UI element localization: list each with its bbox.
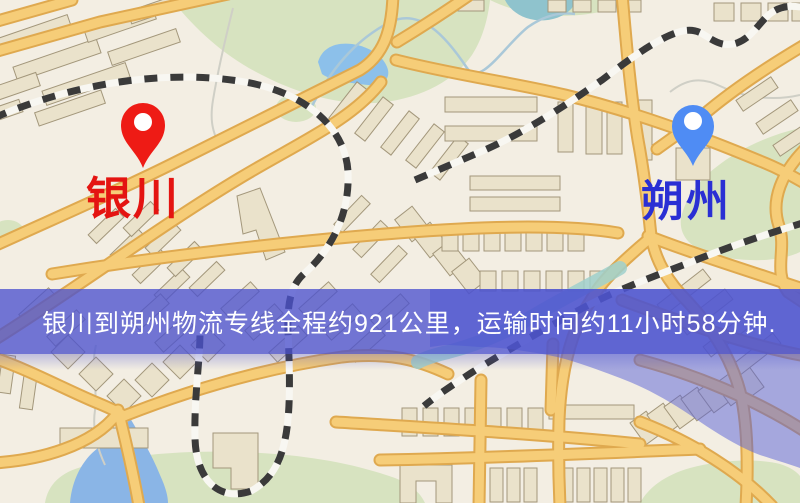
route-info-banner: 银川到朔州物流专线全程约921公里，运输时间约11小时58分钟. <box>0 289 800 354</box>
map-graphic: 银川 朔州 银川到朔州物流专线全程约921公里，运输时间约11小时58分钟. <box>0 0 800 503</box>
route-info-text: 银川到朔州物流专线全程约921公里，运输时间约11小时58分钟. <box>0 304 776 340</box>
destination-city-label: 朔州 <box>641 181 731 224</box>
destination-pin-hole <box>684 112 702 130</box>
origin-pin-hole <box>134 113 152 131</box>
map-canvas[interactable] <box>0 0 800 503</box>
origin-city-label: 银川 <box>86 176 180 221</box>
